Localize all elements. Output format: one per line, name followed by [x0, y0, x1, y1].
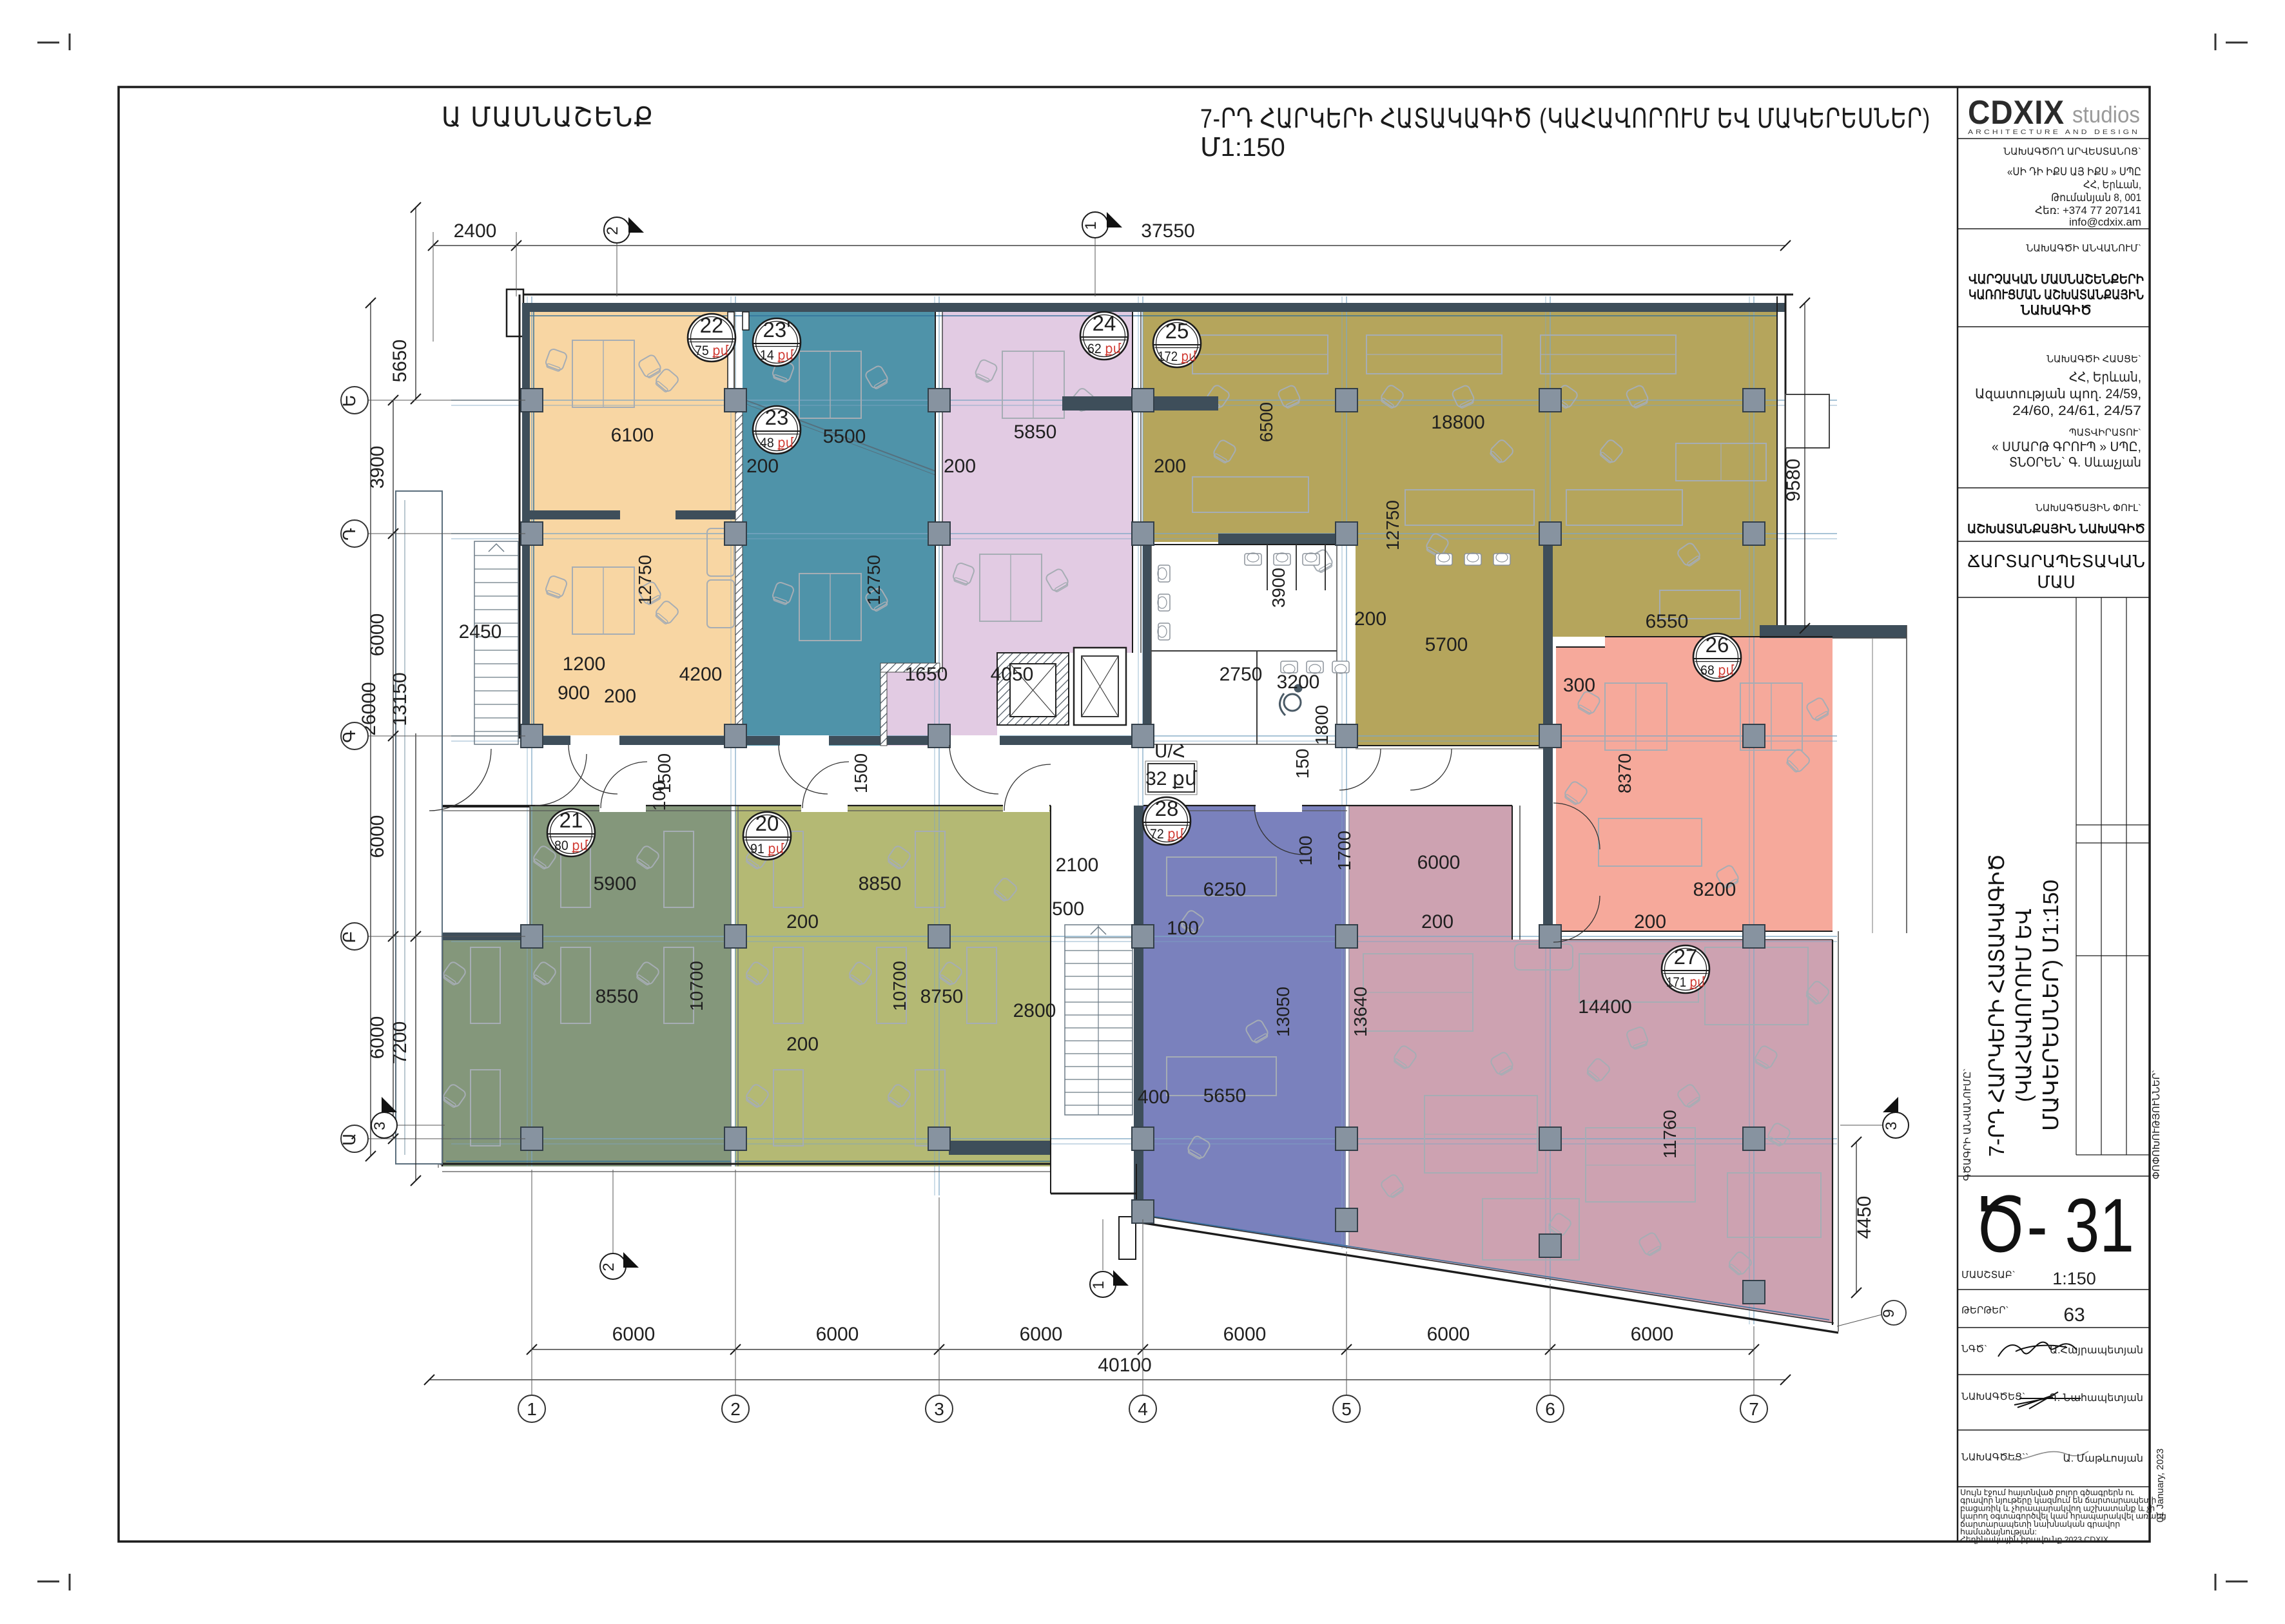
svg-text:ՃԱՐՏԱՐԱՊԵՏԱԿԱՆ: ՃԱՐՏԱՐԱՊԵՏԱԿԱՆ	[1967, 552, 2145, 571]
svg-text:32 քմ: 32 քմ	[1145, 768, 1198, 789]
svg-text:ՏՆՕՐԵՆ` Գ. Սևաչյան: ՏՆՕՐԵՆ` Գ. Սևաչյան	[2009, 456, 2141, 470]
svg-text:(ԿԱՀԱՎՈՐՈՒՄ ԵՎ: (ԿԱՀԱՎՈՐՈՒՄ ԵՎ	[2012, 909, 2036, 1102]
svg-text:400: 400	[1138, 1087, 1170, 1108]
svg-text:« ՍՄԱՐԹ ԳՐՈՒՊ » ՍՊԸ,: « ՍՄԱՐԹ ԳՐՈՒՊ » ՍՊԸ,	[1992, 440, 2141, 454]
svg-text:Ե: Ե	[340, 394, 359, 407]
svg-text:6000: 6000	[1631, 1324, 1674, 1345]
svg-text:37550: 37550	[1141, 220, 1194, 242]
svg-text:63: 63	[2063, 1304, 2085, 1326]
svg-text:1500: 1500	[654, 753, 674, 793]
svg-text:172 քմ: 172 քմ	[1158, 349, 1197, 364]
svg-text:Գ: Գ	[340, 730, 359, 743]
svg-text:ՆԱԽԱԳԻԾ: ՆԱԽԱԳԻԾ	[2020, 304, 2092, 318]
svg-text:12750: 12750	[864, 555, 884, 605]
svg-text:1: 1	[1090, 1281, 1107, 1289]
svg-text:ՓՈՓՈԽՈՒԹՅՈՒՆՆԵՐ`: ՓՈՓՈԽՈՒԹՅՈՒՆՆԵՐ`	[2151, 1070, 2162, 1179]
svg-text:200: 200	[1354, 608, 1386, 630]
svg-text:13050: 13050	[1273, 987, 1293, 1037]
svg-text:1: 1	[1082, 221, 1100, 229]
svg-text:6550: 6550	[1646, 611, 1689, 632]
svg-text:200: 200	[786, 911, 819, 933]
svg-text:ՆԳԾ`: ՆԳԾ`	[1961, 1344, 1987, 1355]
svg-text:27: 27	[1674, 945, 1698, 969]
svg-text:100: 100	[1296, 836, 1316, 866]
svg-text:3: 3	[371, 1121, 389, 1130]
svg-text:14 քմ: 14 քմ	[760, 348, 794, 363]
svg-text:5700: 5700	[1425, 634, 1468, 655]
svg-text:ՄԱՍՇՏԱԲ`: ՄԱՍՇՏԱԲ`	[1961, 1270, 2016, 1281]
svg-text:6000: 6000	[1223, 1324, 1267, 1345]
svg-text:6000: 6000	[816, 1324, 859, 1345]
svg-text:Ա: Ա	[340, 1133, 359, 1146]
svg-text:ՆԱԽԱԳԾԻ ԱՆՎԱՆՈՒՄ`: ՆԱԽԱԳԾԻ ԱՆՎԱՆՈՒՄ`	[2026, 243, 2141, 254]
svg-text:Ս/Հ: Ս/Հ	[1154, 741, 1185, 761]
svg-text:900: 900	[558, 682, 590, 704]
svg-text:75 քմ: 75 քմ	[695, 343, 729, 358]
svg-text:2100: 2100	[1056, 855, 1099, 876]
svg-text:62 քմ: 62 քմ	[1087, 342, 1122, 356]
svg-text:23': 23'	[763, 318, 790, 342]
svg-text:5: 5	[1341, 1399, 1352, 1419]
svg-text:6000: 6000	[367, 1016, 388, 1059]
svg-text:ՆԱԽԱԳԾԱՅԻՆ ՓՈՒԼ`: ՆԱԽԱԳԾԱՅԻՆ ՓՈՒԼ`	[2036, 503, 2141, 514]
svg-text:14400: 14400	[1578, 996, 1631, 1018]
svg-text:13640: 13640	[1350, 987, 1370, 1037]
svg-text:13150: 13150	[389, 672, 411, 726]
svg-text:26: 26	[1706, 633, 1729, 657]
svg-text:1800: 1800	[1312, 705, 1332, 745]
svg-text:Թումանյան 8, 001: Թումանյան 8, 001	[2051, 191, 2141, 204]
svg-text:Ա.Հայրապետյան: Ա.Հայրապետյան	[2050, 1345, 2143, 1356]
svg-text:18800: 18800	[1431, 412, 1484, 433]
svg-text:ՆԱԽԱԳԾՈՂ ԱՐՎԵՍՏԱՆՈՑ`: ՆԱԽԱԳԾՈՂ ԱՐՎԵՍՏԱՆՈՑ`	[2003, 146, 2141, 157]
svg-text:ՀՀ, Երևան,: ՀՀ, Երևան,	[2083, 179, 2141, 191]
svg-text:3900: 3900	[1269, 568, 1288, 608]
svg-text:ԿԱՌՈՒՑՄԱՆ ԱՇԽԱՏԱՆՔԱՅԻՆ: ԿԱՌՈՒՑՄԱՆ ԱՇԽԱՏԱՆՔԱՅԻՆ	[1969, 288, 2144, 302]
svg-text:Հեղինակային իրավունք 2023 CDXI: Հեղինակային իրավունք 2023 CDXIX.	[1960, 1535, 2110, 1544]
svg-text:300: 300	[1563, 675, 1595, 696]
svg-text:6000: 6000	[367, 614, 388, 657]
svg-text:5850: 5850	[1014, 421, 1057, 443]
svg-text:ՄԱԿԵՐԵՍՆԵՐ) Մ1:150: ՄԱԿԵՐԵՍՆԵՐ) Մ1:150	[2039, 880, 2063, 1131]
svg-text:2450: 2450	[459, 621, 502, 643]
svg-text:72 քմ: 72 քմ	[1150, 827, 1184, 842]
svg-text:ՀՀ, Երևան,: ՀՀ, Երևան,	[2069, 370, 2141, 385]
svg-text:8850: 8850	[859, 873, 902, 894]
svg-text:ԳԾԱԳՐԻ ԱՆՎԱՆՈՒՄԸ`: ԳԾԱԳՐԻ ԱՆՎԱՆՈՒՄԸ`	[1962, 1068, 1973, 1181]
svg-text:4: 4	[1138, 1399, 1148, 1419]
svg-text:2: 2	[604, 226, 621, 235]
svg-text:12750: 12750	[635, 555, 655, 605]
svg-text:8550: 8550	[596, 986, 639, 1007]
svg-text:ՊԱՏՎԻՐԱՏՈՒ`: ՊԱՏՎԻՐԱՏՈՒ`	[2069, 427, 2141, 438]
svg-text:ՆԱԽԱԳԾԵՑ`: ՆԱԽԱԳԾԵՑ`	[1961, 1391, 2025, 1402]
svg-text:Դ: Դ	[340, 528, 359, 541]
svg-text:«ՍԻ ԴԻ ԻՔՍ ԱՅ ԻՔՍ » ՍՊԸ: «ՍԻ ԴԻ ԻՔՍ ԱՅ ԻՔՍ » ՍՊԸ	[2007, 166, 2141, 178]
svg-text:10700: 10700	[890, 961, 909, 1011]
svg-text:22: 22	[700, 313, 724, 337]
svg-text:200: 200	[746, 456, 779, 477]
svg-text:9580: 9580	[1783, 459, 1804, 502]
svg-text:ԱՇԽԱՏԱՆՔԱՅԻՆ ՆԱԽԱԳԻԾ: ԱՇԽԱՏԱՆՔԱՅԻՆ ՆԱԽԱԳԻԾ	[1967, 523, 2145, 536]
svg-text:40100: 40100	[1098, 1355, 1151, 1376]
svg-text:200: 200	[1154, 456, 1186, 477]
svg-text:4050: 4050	[991, 664, 1034, 685]
svg-text:studios: studios	[2072, 101, 2140, 128]
svg-text:1500: 1500	[851, 753, 871, 793]
svg-text:171 քմ: 171 քմ	[1666, 975, 1706, 990]
svg-text:4450: 4450	[1854, 1196, 1875, 1239]
svg-text:ԹԵՐԹԵՐ`: ԹԵՐԹԵՐ`	[1961, 1305, 2009, 1316]
svg-text:6000: 6000	[367, 815, 388, 858]
svg-text:1:150: 1:150	[2052, 1269, 2096, 1288]
svg-text:10700: 10700	[686, 961, 706, 1011]
svg-text:ՆԱԽԱԳԾԵՑ``: ՆԱԽԱԳԾԵՑ``	[1961, 1452, 2028, 1463]
svg-text:2: 2	[600, 1262, 617, 1271]
svg-text:Ա ՄԱՍՆԱՇԵՆՔ: Ա ՄԱՍՆԱՇԵՆՔ	[442, 102, 654, 132]
svg-text:6000: 6000	[612, 1324, 656, 1345]
svg-text:4200: 4200	[679, 664, 723, 685]
svg-text:5500: 5500	[823, 426, 866, 447]
svg-text:1700: 1700	[1334, 831, 1354, 871]
svg-text:9: 9	[1880, 1309, 1898, 1317]
svg-text:2: 2	[730, 1399, 741, 1419]
svg-text:21: 21	[559, 808, 583, 832]
svg-text:12750: 12750	[1383, 500, 1403, 550]
svg-text:2400: 2400	[454, 220, 497, 242]
svg-text:2750: 2750	[1220, 664, 1263, 685]
svg-text:3: 3	[934, 1399, 944, 1419]
svg-text:Ա. Մաթևոսյան: Ա. Մաթևոսյան	[2063, 1453, 2143, 1464]
svg-text:ARCHITECTURE AND DESIGN: ARCHITECTURE AND DESIGN	[1968, 129, 2140, 136]
svg-text:200: 200	[786, 1034, 819, 1055]
svg-text:ՎԱՐՉԱԿԱՆ ՄԱՍՆԱՇԵՆՔԵՐԻ: ՎԱՐՉԱԿԱՆ ՄԱՍՆԱՇԵՆՔԵՐԻ	[1969, 273, 2144, 287]
svg-text:3900: 3900	[367, 446, 388, 489]
svg-text:6250: 6250	[1203, 879, 1247, 900]
svg-text:8750: 8750	[920, 986, 964, 1007]
svg-text:6100: 6100	[611, 425, 654, 446]
svg-text:80 քմ: 80 քմ	[554, 838, 588, 853]
svg-text:1200: 1200	[563, 653, 606, 675]
svg-text:24/60, 24/61, 24/57: 24/60, 24/61, 24/57	[2012, 403, 2141, 418]
svg-text:8370: 8370	[1615, 753, 1635, 793]
svg-text:Բ: Բ	[340, 931, 359, 943]
svg-text:6000: 6000	[1427, 1324, 1470, 1345]
svg-text:200: 200	[1634, 911, 1666, 933]
svg-text:Հեռ: +374 77 207141: Հեռ: +374 77 207141	[2035, 204, 2141, 217]
svg-text:7: 7	[1749, 1399, 1759, 1419]
svg-text:1: 1	[527, 1399, 537, 1419]
svg-text:6500: 6500	[1256, 402, 1276, 442]
svg-text:2800: 2800	[1013, 1000, 1056, 1021]
svg-text:25: 25	[1165, 319, 1189, 343]
svg-text:7-ՐԴ ՀԱՐԿԵՐԻ ՀԱՏԱԿԱԳԻԾ: 7-ՐԴ ՀԱՐԿԵՐԻ ՀԱՏԱԿԱԳԻԾ	[1985, 854, 2008, 1157]
svg-text:7200: 7200	[389, 1021, 411, 1065]
svg-text:6: 6	[1545, 1399, 1555, 1419]
svg-text:CDXIX: CDXIX	[1968, 94, 2065, 131]
svg-text:ՆԱԽԱԳԾԻ ՀԱՍՑԵ`: ՆԱԽԱԳԾԻ ՀԱՍՑԵ`	[2047, 354, 2141, 365]
svg-text:7-ՐԴ ՀԱՐԿԵՐԻ ՀԱՏԱԿԱԳԻԾ (ԿԱՀԱ: 7-ՐԴ ՀԱՐԿԵՐԻ ՀԱՏԱԿԱԳԻԾ (ԿԱՀԱՎՈՐՈՒՄ ԵՎ ՄԱ…	[1200, 103, 1930, 133]
svg-text:6000: 6000	[1020, 1324, 1063, 1345]
svg-text:6000: 6000	[1417, 852, 1461, 873]
svg-text:24: 24	[1093, 311, 1116, 335]
svg-text:Մ1:150: Մ1:150	[1200, 133, 1285, 162]
svg-text:150: 150	[1292, 749, 1312, 779]
svg-text:1650: 1650	[905, 664, 948, 685]
svg-text:500: 500	[1052, 898, 1084, 920]
svg-text:5650: 5650	[1203, 1085, 1247, 1107]
svg-text:Ազատության պող. 24/59,: Ազատության պող. 24/59,	[1975, 387, 2141, 401]
svg-text:23: 23	[765, 405, 789, 429]
svg-text:200: 200	[604, 686, 636, 707]
svg-text:5900: 5900	[594, 873, 637, 894]
svg-text:3: 3	[1883, 1121, 1900, 1130]
svg-text:48 քմ: 48 քմ	[760, 436, 794, 450]
svg-text:28: 28	[1155, 797, 1179, 820]
svg-text:01 January, 2023: 01 January, 2023	[2155, 1449, 2166, 1523]
svg-text:91 քմ: 91 քմ	[750, 842, 784, 856]
svg-text:8200: 8200	[1693, 879, 1736, 900]
svg-text:100: 100	[1167, 918, 1199, 939]
svg-text:3200: 3200	[1277, 672, 1320, 693]
svg-text:200: 200	[944, 456, 976, 477]
svg-text:5650: 5650	[389, 340, 411, 383]
svg-text:info@cdxix.am: info@cdxix.am	[2069, 216, 2141, 228]
svg-text:200: 200	[1421, 911, 1454, 933]
svg-text:Ծ- 31: Ծ- 31	[1973, 1183, 2134, 1268]
svg-text:Դ. Նահապետյան: Դ. Նահապետյան	[2050, 1393, 2143, 1404]
svg-text:11760: 11760	[1660, 1110, 1680, 1159]
svg-text:68 քմ: 68 քմ	[1700, 663, 1735, 678]
svg-text:20: 20	[755, 811, 779, 835]
svg-text:ՄԱՍ: ՄԱՍ	[2037, 572, 2076, 592]
